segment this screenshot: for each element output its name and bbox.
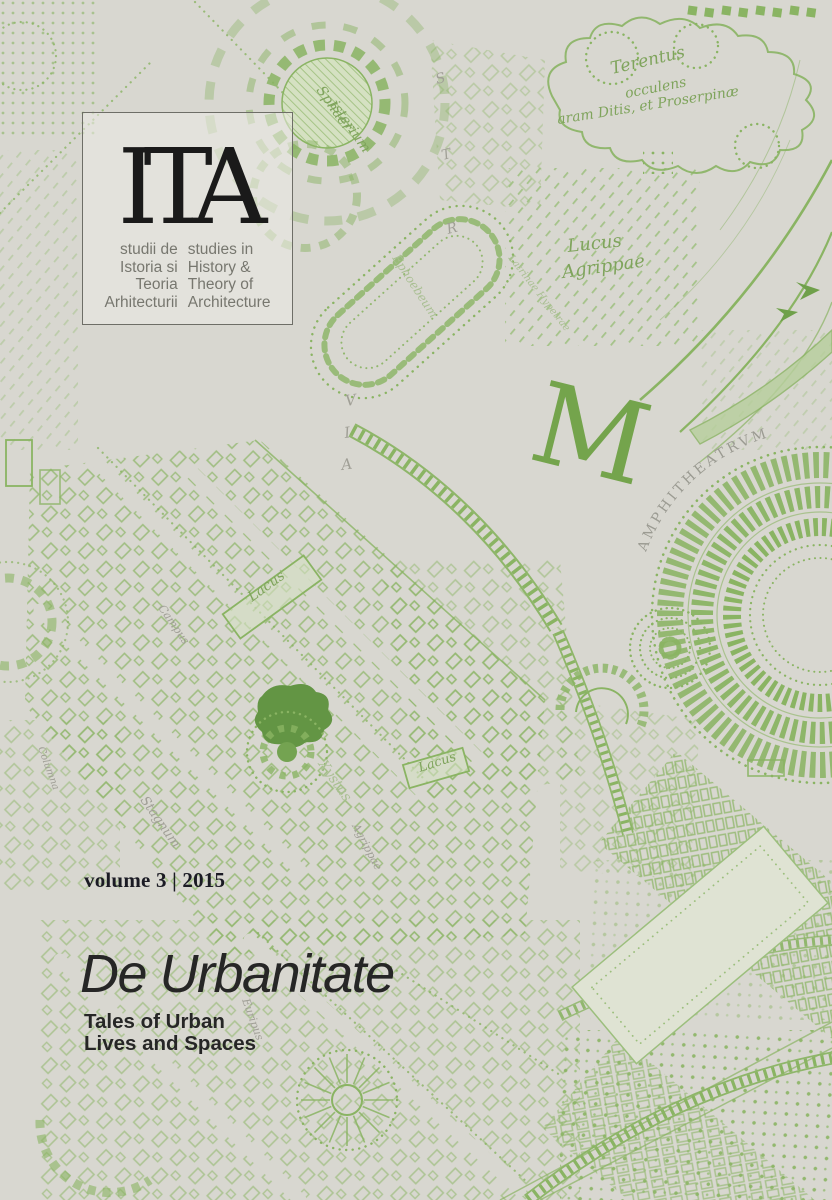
- dotted-square-row: [687, 5, 816, 17]
- cover-title: De Urbanitate: [80, 946, 394, 1003]
- map-letter-m: M: [519, 358, 662, 512]
- map-label: Terentus: [609, 42, 688, 79]
- logo-subtitle: studii de Istoria si Teoria Arhitecturii…: [83, 241, 292, 311]
- logo-subtitle-line: Architecture: [188, 294, 271, 312]
- logo-subtitle-english: studies in History & Theory of Architect…: [188, 241, 271, 311]
- logo-subtitle-line: studii de: [105, 241, 178, 259]
- journal-cover: Sphaer-isteriumTerentusocculensaram Diti…: [0, 0, 832, 1200]
- map-label: R: [444, 220, 460, 239]
- map-label: A: [338, 455, 353, 475]
- logo-subtitle-line: studies in: [188, 241, 271, 259]
- logo-subtitle-line: Istoria si: [105, 259, 178, 277]
- map-label: Ephoebeum: [389, 251, 441, 320]
- logo-subtitle-line: Teoria: [105, 276, 178, 294]
- map-label: V: [344, 390, 359, 410]
- volume-year: volume 3 | 2015: [84, 868, 225, 893]
- cover-subtitle-line: Tales of Urban: [84, 1011, 256, 1033]
- cover-subtitle: Tales of Urban Lives and Spaces: [84, 1011, 256, 1055]
- logo-subtitle-line: Arhitecturii: [105, 294, 178, 312]
- logo-subtitle-line: Theory of: [188, 276, 271, 294]
- logo-subtitle-line: History &: [188, 259, 271, 277]
- logo-subtitle-romanian: studii de Istoria si Teoria Arhitecturii: [105, 241, 178, 311]
- cover-subtitle-line: Lives and Spaces: [84, 1033, 256, 1055]
- journal-logo-box: ITA studii de Istoria si Teoria Arhitect…: [82, 112, 293, 325]
- sita-logo: ITA: [117, 135, 252, 239]
